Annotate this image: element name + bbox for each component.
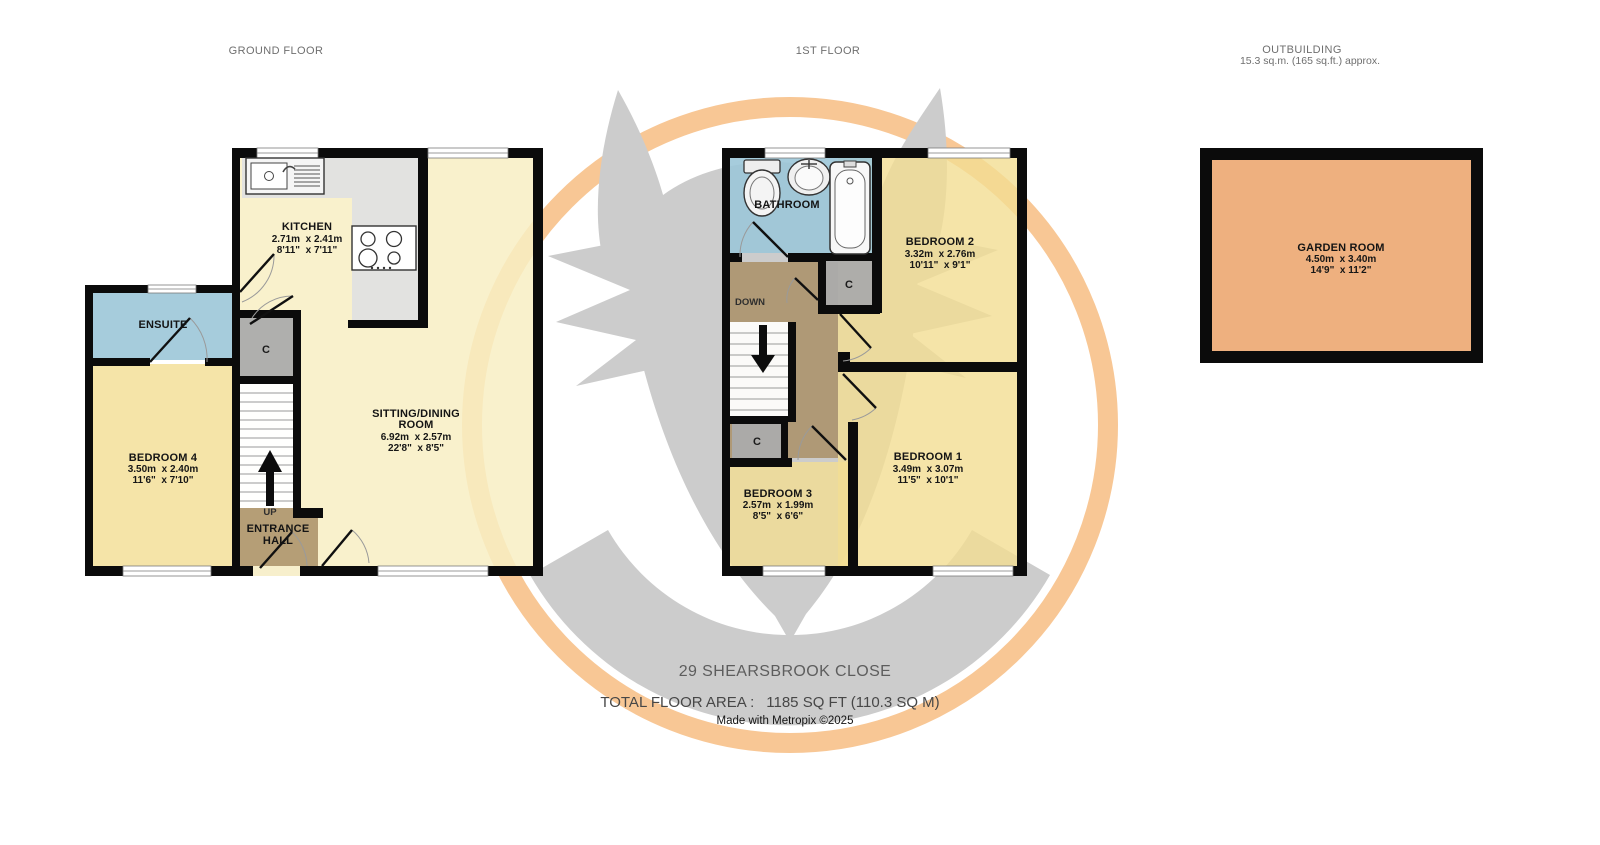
room-label-entrance2: HALL [263,535,293,547]
room-label-bedroom4-metric: 3.50m x 2.40m [128,464,199,475]
metropix-credit: Made with Metropix ©2025 [717,715,854,727]
address-title: 29 SHEARSBROOK CLOSE [679,663,892,680]
room-label-bedroom4-name: BEDROOM 4 [129,452,198,464]
down-label: DOWN [735,297,765,308]
room-label-bedroom3-name: BEDROOM 3 [744,488,812,500]
outbuilding-plan: GARDEN ROOM 4.50m x 3.40m 14'9" x 11'2" [1200,148,1483,363]
ground-floor-title: GROUND FLOOR [229,45,324,57]
kitchen-sink-icon [246,158,324,194]
room-label-bedroom3-metric: 2.57m x 1.99m [743,500,814,511]
cupboard-label-upper: C [845,279,853,291]
room-label-bedroom1-imperial: 11'5" x 10'1" [898,475,959,486]
room-label-bedroom1-name: BEDROOM 1 [894,451,962,463]
first-floor-plan: BATHROOM BEDROOM 2 3.32m x 2.76m 10'11" … [722,148,1027,576]
room-label-sitting-imperial: 22'8" x 8'5" [388,443,444,454]
ground-floor-plan: KITCHEN 2.71m x 2.41m 8'11" x 7'11" SITT… [85,148,543,576]
room-label-sitting-name2: ROOM [398,419,433,431]
room-label-entrance1: ENTRANCE [247,523,310,535]
floorplan-canvas: KITCHEN 2.71m x 2.41m 8'11" x 7'11" SITT… [0,0,1600,845]
total-floor-area-label: TOTAL FLOOR AREA : [600,694,754,711]
floorplan-page: KITCHEN 2.71m x 2.41m 8'11" x 7'11" SITT… [0,0,1600,845]
room-label-bathroom: BATHROOM [754,199,820,211]
room-label-bedroom2-name: BEDROOM 2 [906,236,974,248]
room-label-garden-name: GARDEN ROOM [1297,242,1384,254]
cupboard-label-lower: C [753,436,761,448]
basin-icon [788,159,830,195]
outbuilding-area: 15.3 sq.m. (165 sq.ft.) approx. [1240,55,1380,67]
cupboard-label-ground: C [262,344,270,356]
room-label-kitchen-name: KITCHEN [282,221,332,233]
room-label-sitting-metric: 6.92m x 2.57m [381,432,452,443]
room-label-garden-imperial: 14'9" x 11'2" [1311,265,1372,276]
room-label-kitchen-metric: 2.71m x 2.41m [272,234,343,245]
up-label: UP [263,507,277,518]
total-floor-area-value: 1185 SQ FT (110.3 SQ M) [766,694,939,711]
room-label-bedroom2-imperial: 10'11" x 9'1" [910,260,971,271]
hob-icon [352,226,416,270]
room-label-kitchen-imperial: 8'11" x 7'11" [277,245,338,256]
total-floor-area: TOTAL FLOOR AREA :1185 SQ FT (110.3 SQ M… [600,694,939,711]
room-label-bedroom1-metric: 3.49m x 3.07m [893,464,964,475]
first-floor-title: 1ST FLOOR [796,45,861,57]
room-label-bedroom2-metric: 3.32m x 2.76m [905,249,976,260]
bathtub-icon [830,161,870,254]
room-label-ensuite: ENSUITE [138,319,187,331]
room-label-garden-metric: 4.50m x 3.40m [1306,254,1377,265]
room-label-bedroom3-imperial: 8'5" x 6'6" [753,511,804,522]
room-label-bedroom4-imperial: 11'6" x 7'10" [133,475,194,486]
